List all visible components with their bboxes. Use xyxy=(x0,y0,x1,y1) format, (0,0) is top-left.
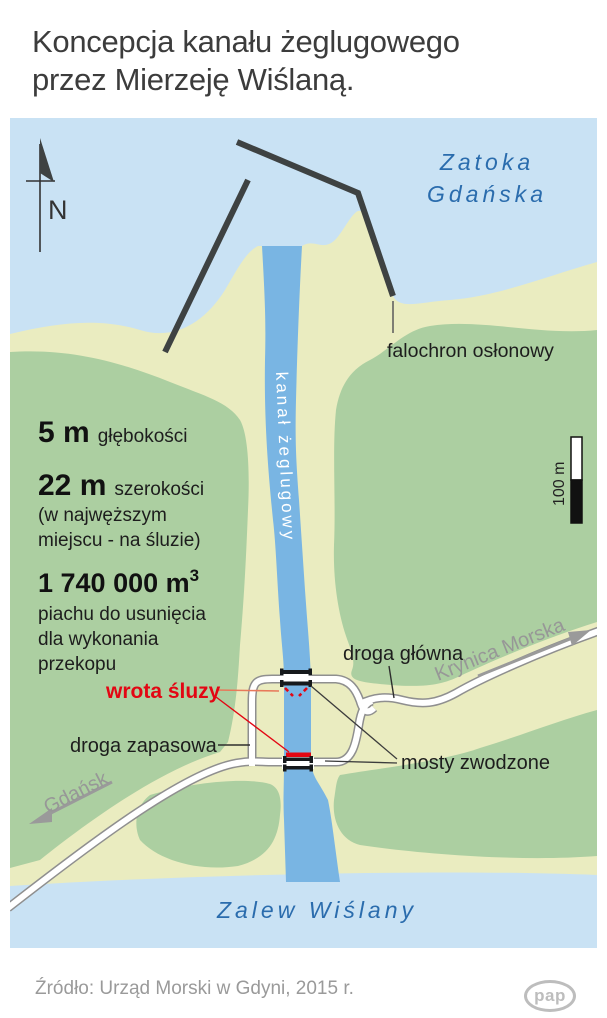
title-line2: przez Mierzeję Wiślaną. xyxy=(32,62,354,97)
stat-volume: 1 740 000 m3 xyxy=(38,566,199,598)
bridges-label: mosty zwodzone xyxy=(401,752,550,774)
breakwater-label: falochron osłonowy xyxy=(387,340,554,362)
stat-depth-label: głębokości xyxy=(98,426,188,447)
lock-gates-label: wrota śluzy xyxy=(105,680,221,703)
stat-width-value: 22 m xyxy=(38,469,106,502)
stat-width-note2: miejscu - na śluzie) xyxy=(38,530,201,551)
stat-width-label: szerokości xyxy=(114,479,204,500)
stat-volume-label3: przekopu xyxy=(38,654,116,675)
north-label: N xyxy=(48,195,68,225)
pap-logo: pap xyxy=(524,980,576,1012)
bridge-south xyxy=(282,753,314,772)
stat-volume-label1: piachu do usunięcia xyxy=(38,604,206,625)
map-canvas: N 100 m Gdańsk Krynica Morska Zatoka Gda… xyxy=(10,118,597,948)
pap-logo-text: pap xyxy=(534,986,566,1006)
scale-bar-black xyxy=(571,480,582,523)
scale-label: 100 m xyxy=(551,462,568,506)
stat-width-note1: (w najwęższym xyxy=(38,505,167,526)
backup-road-label: droga zapasowa xyxy=(70,735,218,757)
bay-label-line2: Gdańska xyxy=(427,181,547,207)
page-title: Koncepcja kanału żeglugowego przez Mierz… xyxy=(32,23,592,99)
lagoon-label: Zalew Wiślany xyxy=(216,897,417,923)
stat-volume-value: 1 740 000 m xyxy=(38,568,190,598)
stat-volume-sup: 3 xyxy=(190,566,199,585)
source-credit: Źródło: Urząd Morski w Gdyni, 2015 r. xyxy=(35,978,354,1000)
title-line1: Koncepcja kanału żeglugowego xyxy=(32,24,460,59)
stat-volume-label2: dla wykonania xyxy=(38,629,159,650)
bay-label-line1: Zatoka xyxy=(439,149,534,175)
scale-bar-white xyxy=(571,437,582,480)
stat-depth-value: 5 m xyxy=(38,416,90,449)
bridge-north xyxy=(280,669,312,688)
main-road-label: droga główna xyxy=(343,643,464,665)
lock-gate-closed xyxy=(286,753,311,758)
lock-gates-leader-open xyxy=(216,690,279,691)
